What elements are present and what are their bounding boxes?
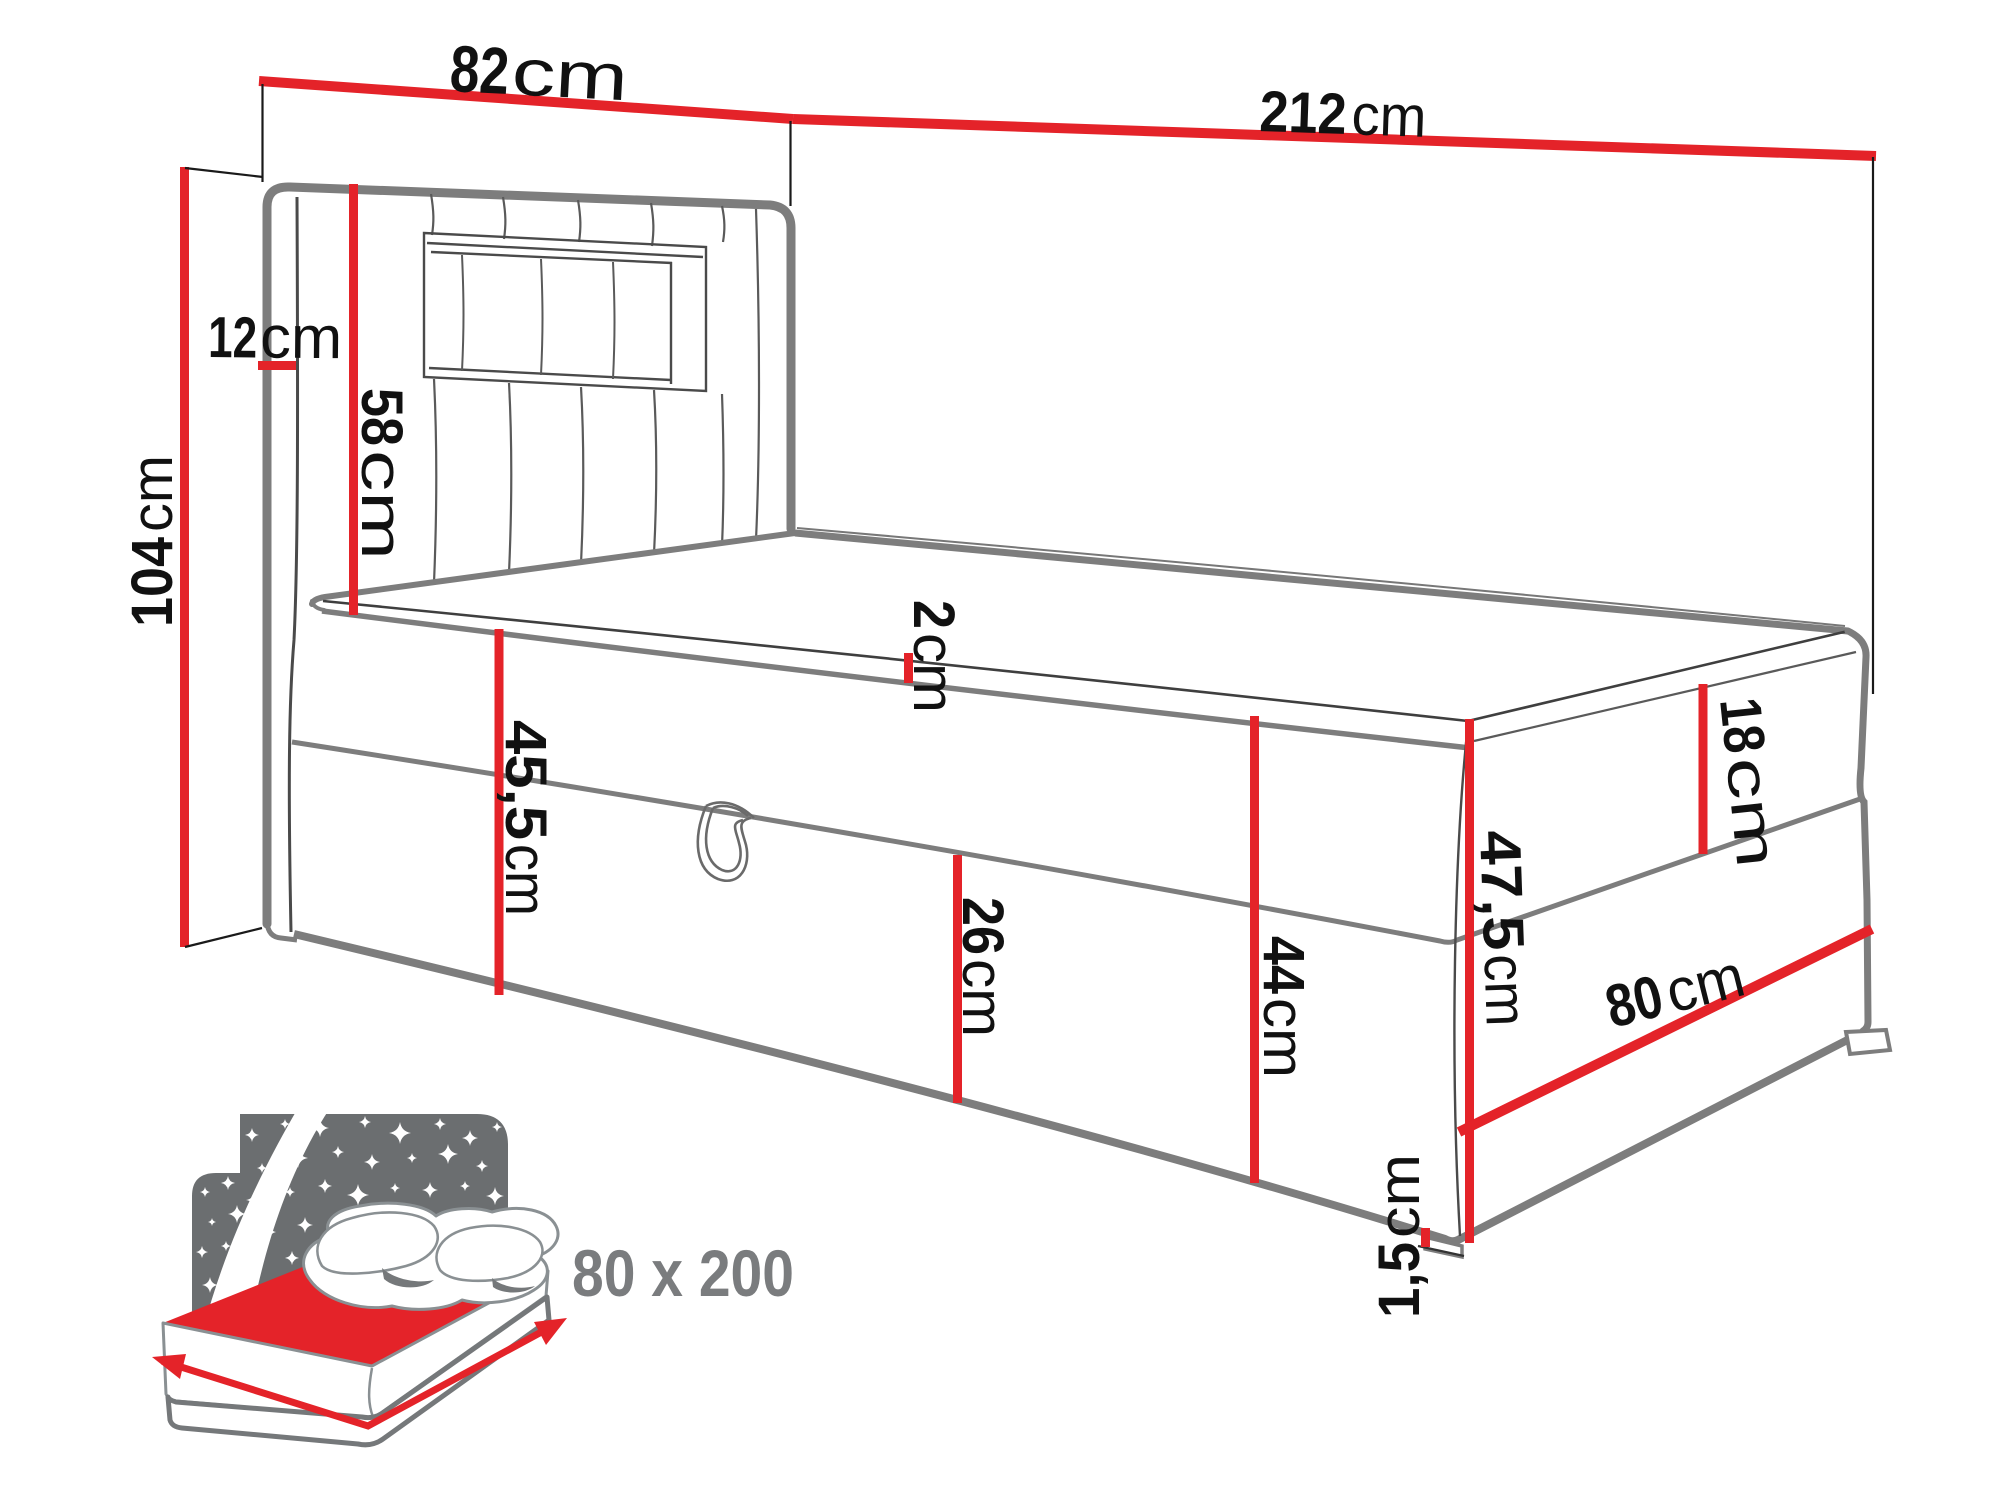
- svg-text:12: 12: [208, 305, 258, 370]
- svg-text:cm: cm: [493, 844, 558, 916]
- svg-text:cm: cm: [349, 450, 414, 560]
- svg-text:cm: cm: [901, 633, 966, 713]
- svg-text:cm: cm: [1471, 953, 1538, 1027]
- svg-text:cm: cm: [510, 34, 630, 114]
- svg-text:212: 212: [1259, 79, 1348, 147]
- svg-text:cm: cm: [1713, 754, 1789, 870]
- svg-text:cm: cm: [1367, 1154, 1432, 1238]
- svg-text:cm: cm: [260, 303, 343, 371]
- svg-text:80 x 200: 80 x 200: [572, 1236, 794, 1310]
- svg-text:cm: cm: [1350, 82, 1427, 150]
- svg-text:44: 44: [1251, 936, 1316, 994]
- svg-text:47,5: 47,5: [1467, 829, 1536, 951]
- svg-text:45,5: 45,5: [493, 720, 558, 840]
- svg-text:2: 2: [901, 600, 966, 629]
- svg-text:58: 58: [349, 388, 414, 446]
- svg-text:1,5: 1,5: [1367, 1242, 1432, 1318]
- svg-text:26: 26: [950, 897, 1015, 955]
- svg-text:cm: cm: [950, 959, 1015, 1037]
- svg-text:82: 82: [448, 31, 511, 108]
- svg-text:cm: cm: [1251, 998, 1316, 1078]
- svg-text:18: 18: [1707, 695, 1777, 756]
- svg-text:cm: cm: [120, 455, 185, 532]
- svg-text:104: 104: [120, 537, 185, 627]
